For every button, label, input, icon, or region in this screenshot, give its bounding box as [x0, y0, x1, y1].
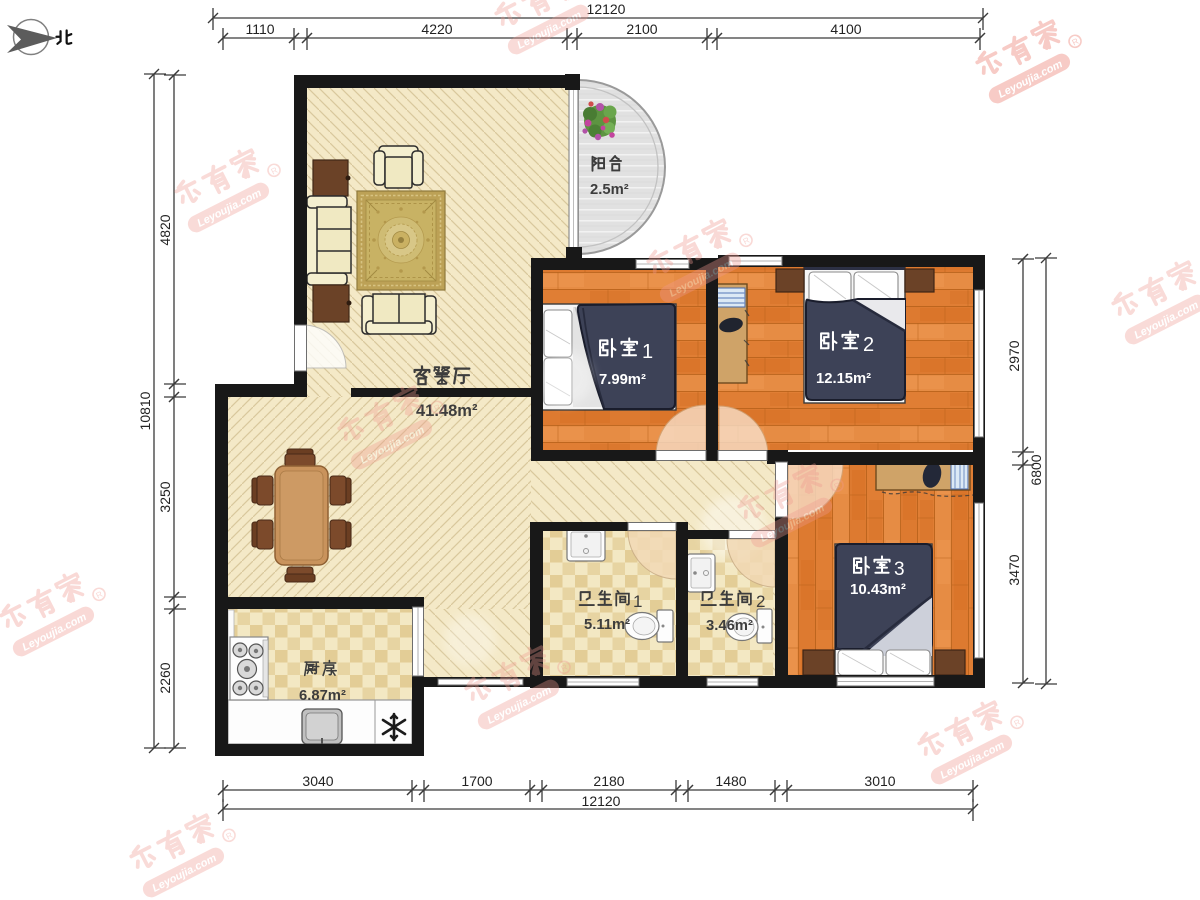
svg-text:6.87m²: 6.87m²: [299, 688, 346, 704]
svg-text:3470: 3470: [1006, 554, 1022, 585]
svg-text:1110: 1110: [245, 21, 274, 37]
svg-text:2180: 2180: [593, 773, 624, 789]
svg-text:2260: 2260: [157, 662, 173, 693]
svg-text:2100: 2100: [626, 21, 657, 37]
svg-text:1: 1: [642, 341, 653, 363]
svg-text:1480: 1480: [715, 773, 746, 789]
svg-text:2970: 2970: [1006, 340, 1022, 371]
svg-text:3010: 3010: [864, 773, 895, 789]
svg-text:3040: 3040: [302, 773, 333, 789]
svg-text:3250: 3250: [157, 481, 173, 512]
svg-text:10810: 10810: [137, 391, 153, 430]
svg-text:10.43m²: 10.43m²: [850, 581, 906, 598]
svg-text:12.15m²: 12.15m²: [816, 371, 871, 387]
svg-text:2.5m²: 2.5m²: [590, 182, 629, 198]
svg-text:7.99m²: 7.99m²: [599, 372, 646, 388]
svg-text:12120: 12120: [582, 793, 621, 809]
svg-text:4220: 4220: [421, 21, 452, 37]
svg-text:41.48m²: 41.48m²: [416, 402, 478, 420]
svg-text:2: 2: [863, 334, 874, 356]
svg-text:5.11m²: 5.11m²: [584, 617, 630, 633]
svg-text:2: 2: [756, 592, 765, 611]
svg-text:1700: 1700: [461, 773, 492, 789]
svg-text:6800: 6800: [1028, 454, 1044, 485]
svg-text:3.46m²: 3.46m²: [706, 618, 753, 634]
svg-text:4100: 4100: [830, 21, 861, 37]
svg-text:4820: 4820: [157, 214, 173, 245]
svg-text:1: 1: [633, 592, 642, 611]
svg-text:12120: 12120: [587, 1, 626, 17]
svg-text:3: 3: [894, 559, 905, 580]
